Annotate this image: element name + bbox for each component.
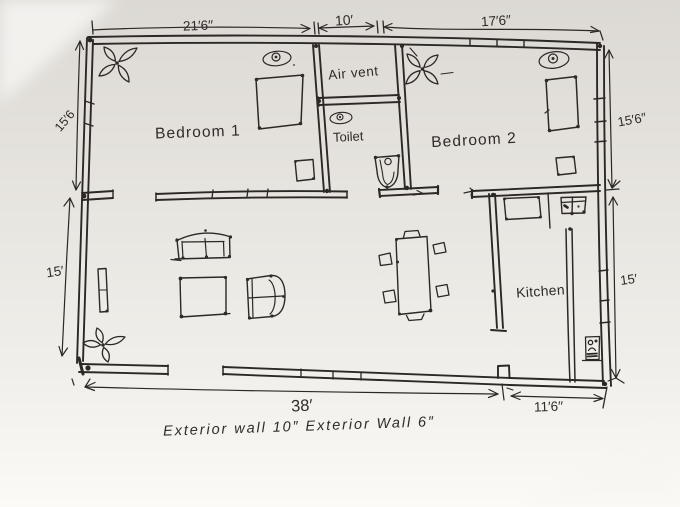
- svg-text:11′6′′: 11′6′′: [534, 399, 564, 415]
- svg-text:Kitchen: Kitchen: [516, 281, 566, 300]
- svg-text:15′: 15′: [619, 271, 638, 288]
- svg-text:17′6″: 17′6″: [481, 12, 512, 29]
- svg-text:38′: 38′: [291, 397, 313, 416]
- svg-text:10′: 10′: [334, 11, 354, 28]
- svg-text:15′: 15′: [45, 263, 65, 280]
- svg-text:21′6′′: 21′6′′: [183, 18, 214, 34]
- svg-text:Toilet: Toilet: [333, 128, 364, 145]
- svg-text:Bedroom 1: Bedroom 1: [155, 122, 241, 142]
